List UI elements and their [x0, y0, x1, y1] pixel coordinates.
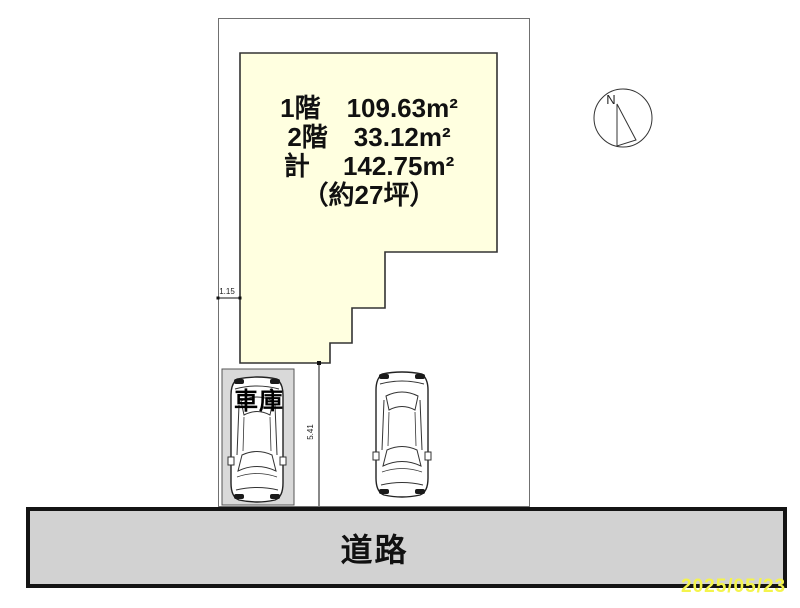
floor-area-line-2f: 2階 33.12m²: [240, 123, 498, 152]
floor-area-line-tsubo: （約27坪）: [240, 181, 498, 210]
north-compass: N: [594, 89, 652, 147]
compass-needle: [617, 104, 636, 146]
road-strip: 道路: [26, 507, 787, 588]
dimension-vertical: 5.41: [306, 361, 321, 506]
dimension-dot: [217, 297, 220, 300]
dimension-dot: [317, 361, 321, 365]
road-label: 道路: [340, 525, 408, 571]
floor-area-line-1f: 1階 109.63m²: [240, 94, 498, 123]
north-label: N: [606, 92, 615, 107]
dimension-dot: [239, 297, 242, 300]
floor-area-line-total: 計 142.75m²: [240, 152, 498, 181]
dimension-label-vertical: 5.41: [306, 424, 315, 440]
garage-label: 車庫: [234, 381, 284, 416]
dimension-label-horizontal: 1.15: [219, 287, 235, 296]
car-parked: [373, 372, 431, 497]
floor-area-summary: 1階 109.63m² 2階 33.12m² 計 142.75m² （約27坪）: [240, 94, 498, 210]
date-stamp: 2025/05/23: [681, 576, 786, 598]
dimension-horizontal: 1.15: [217, 287, 242, 300]
site-plan: 1.15 5.41 N 1階 109.63m² 2階 33.12m² 計 142…: [0, 0, 800, 608]
